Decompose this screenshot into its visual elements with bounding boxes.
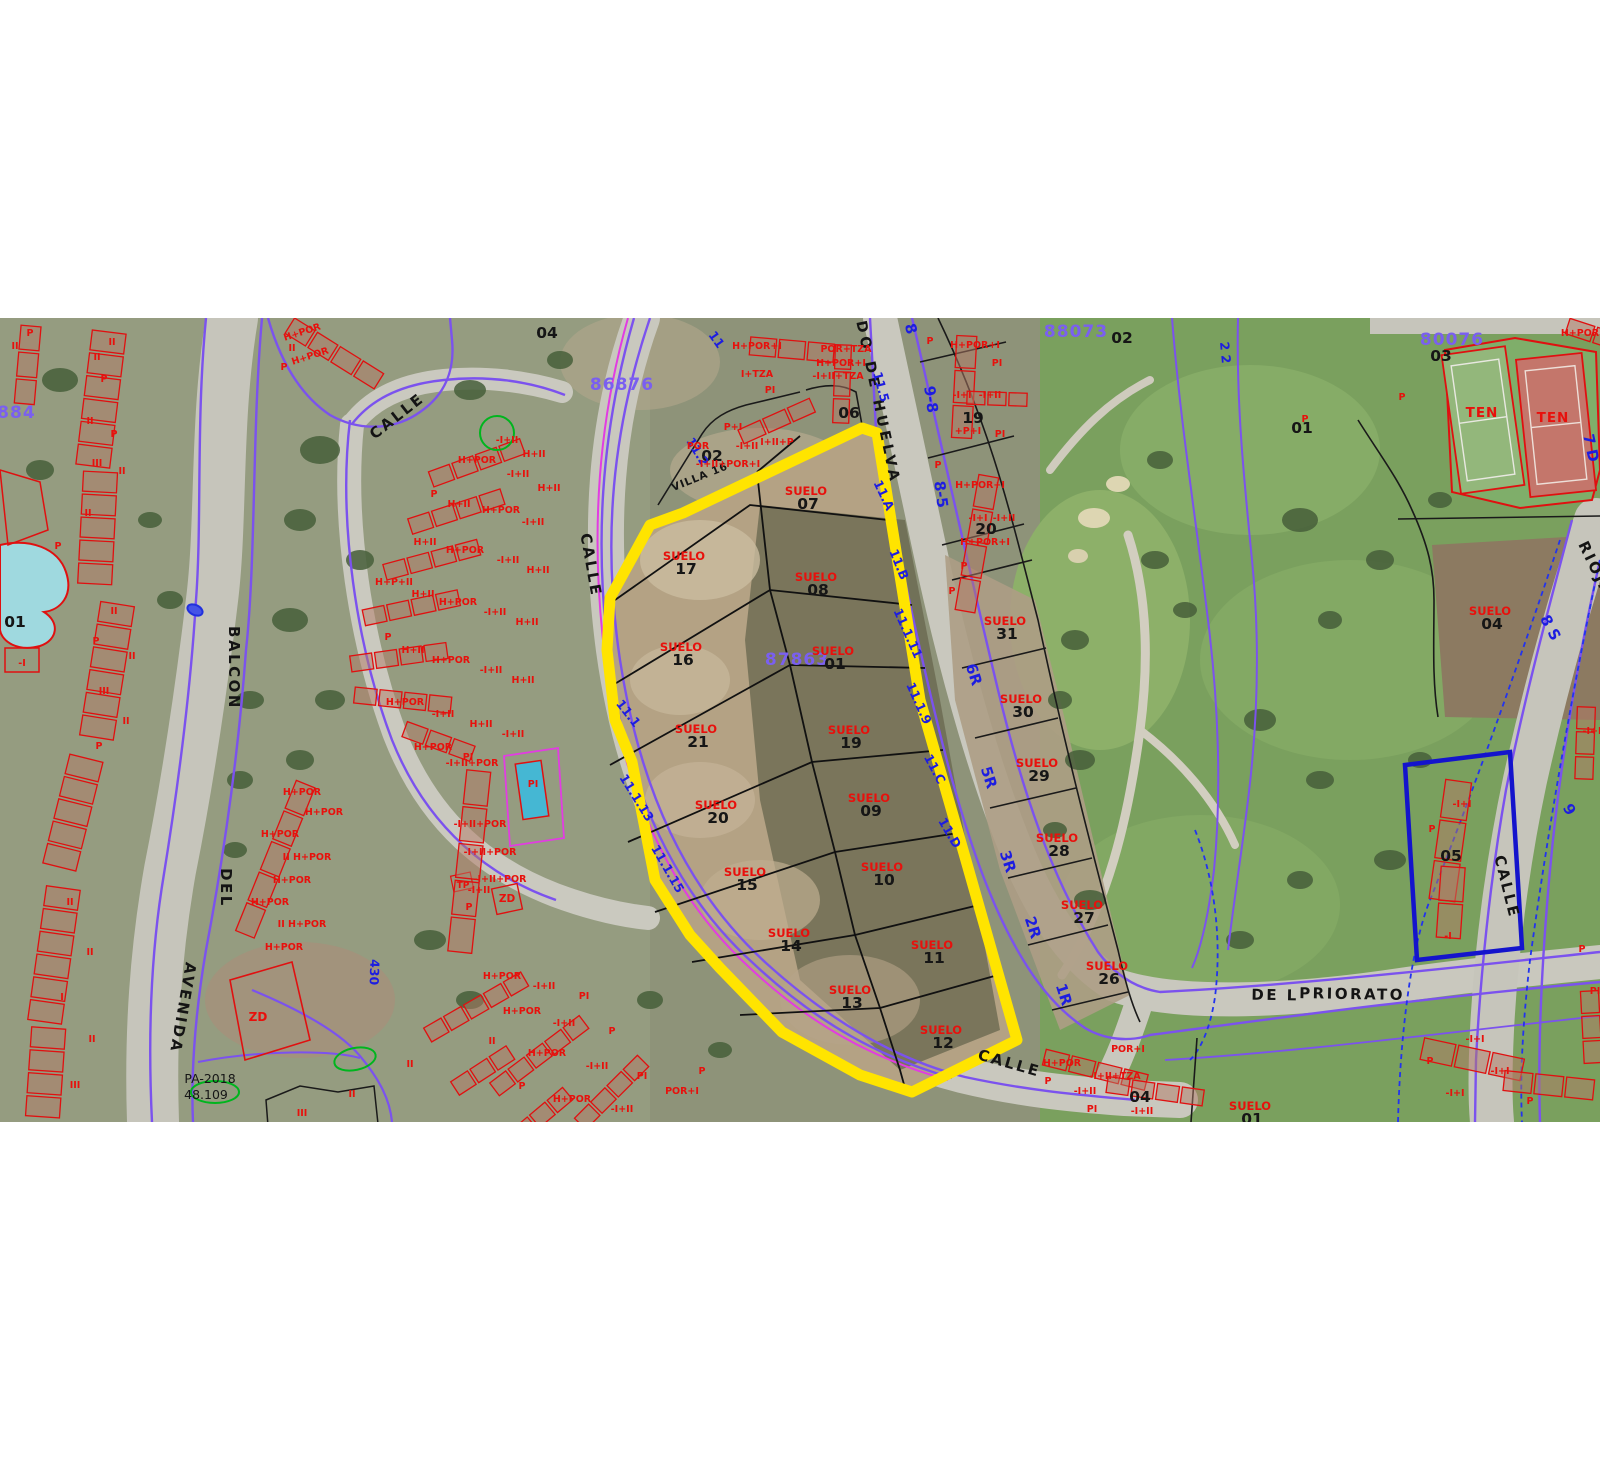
- building-label: PI: [1087, 1104, 1098, 1115]
- building-label: H+POR+I: [955, 480, 1005, 491]
- plot-number: 11: [923, 949, 945, 967]
- building-label: -I+II+TZA: [812, 371, 864, 382]
- building-label: PI: [637, 1071, 648, 1082]
- building-label: III: [70, 1080, 81, 1091]
- plot-number: 19: [840, 734, 862, 752]
- building-label: PI: [765, 385, 776, 396]
- building-label: P: [949, 586, 956, 597]
- building-label: II: [122, 716, 129, 727]
- plot-number: 15: [736, 876, 758, 894]
- building-label: P: [699, 1066, 706, 1077]
- plot-number: 05: [1440, 847, 1462, 865]
- plot-number: 08: [807, 581, 829, 599]
- building-label: II: [406, 1059, 413, 1070]
- building-outline: [354, 687, 378, 705]
- cadastral-map-page: CALLEBALCONDELAVENIDACALLEADO DE HUELVAC…: [0, 0, 1600, 1467]
- plot-number: 13: [841, 994, 863, 1012]
- building-label: P: [385, 632, 392, 643]
- building-label: -I+II+POR+I: [696, 459, 760, 470]
- building-outline: [1534, 1074, 1564, 1097]
- building-label: -I+II: [586, 1061, 609, 1072]
- building-outline: [350, 653, 374, 672]
- building-label: -I+II: [480, 665, 503, 676]
- building-outline: [1180, 1087, 1204, 1106]
- building-label: -I+II: [993, 513, 1016, 524]
- building-label: H+POR: [305, 807, 344, 818]
- plot-number: PA-2018: [184, 1071, 235, 1086]
- building-label: H+II: [516, 617, 539, 628]
- building-outline: [1439, 866, 1465, 902]
- building-label: III: [99, 686, 110, 697]
- building-label: H+POR+I: [732, 341, 782, 352]
- building-label: H+P+II: [375, 577, 413, 588]
- building-label: H+POR: [458, 455, 497, 466]
- building-label: H+POR: [1561, 328, 1600, 339]
- building-label: P: [1399, 392, 1406, 403]
- building-outline: [30, 1027, 65, 1049]
- building-label: +P+I: [955, 426, 981, 437]
- building-label: II: [66, 897, 73, 908]
- building-label: ZD: [249, 1010, 268, 1024]
- building-label: P: [101, 374, 108, 385]
- building-label: II: [108, 337, 115, 348]
- building-outline: [34, 954, 70, 979]
- building-label: H+POR: [273, 875, 312, 886]
- building-label: H+POR+I: [816, 358, 866, 369]
- street-name: BALCON: [225, 626, 243, 710]
- building-label: I: [60, 992, 64, 1003]
- building-label: POR+TZA: [820, 344, 872, 355]
- building-label: II: [488, 1036, 495, 1047]
- plot-number: 17: [675, 560, 697, 578]
- building-label: P: [466, 902, 473, 913]
- building-label: PI: [992, 358, 1003, 369]
- building-label: -I+I: [1491, 1066, 1510, 1077]
- plot-number: 28: [1048, 842, 1070, 860]
- building-label: -I+II: [502, 729, 525, 740]
- building-label: H+POR: [251, 897, 290, 908]
- building-label: H+II: [538, 483, 561, 494]
- building-outline: [448, 917, 475, 953]
- plot-number: 19: [962, 409, 984, 427]
- plot-number: 30: [1012, 703, 1034, 721]
- building-outline: [79, 421, 115, 445]
- plot-number: 26: [1098, 970, 1120, 988]
- map-canvas[interactable]: CALLEBALCONDELAVENIDACALLEADO DE HUELVAC…: [0, 318, 1600, 1122]
- plot-number: 01: [824, 655, 846, 673]
- building-label: P: [96, 741, 103, 752]
- plot-number: 04: [1129, 1088, 1151, 1106]
- street-name: PRIORATO: [1299, 984, 1405, 1004]
- building-label: H+POR: [414, 742, 453, 753]
- building-label: H+POR: [265, 942, 304, 953]
- building-label: -I+II: [611, 1104, 634, 1115]
- building-label: -I+II+POR: [474, 874, 528, 885]
- building-outline: [463, 770, 490, 806]
- building-label: ZD: [499, 893, 516, 905]
- building-outline: [1582, 1016, 1600, 1039]
- building-label: P: [1527, 1096, 1534, 1107]
- building-label: II: [288, 343, 295, 354]
- building-outline: [37, 931, 73, 956]
- building-label: P: [55, 541, 62, 552]
- building-label: P: [961, 561, 968, 572]
- building-outline: [1009, 393, 1027, 407]
- building-label: P: [1427, 1056, 1434, 1067]
- building-label: -I+II+POR: [446, 758, 500, 769]
- parcel-id: 88073: [1044, 322, 1108, 342]
- building-label: -I+II: [496, 435, 519, 446]
- parcel-id: 86876: [590, 375, 654, 395]
- building-label: -I+II: [736, 441, 759, 452]
- plot-number: 20: [707, 809, 729, 827]
- building-label: PI: [528, 779, 539, 790]
- building-label: P: [281, 362, 288, 373]
- tennis-court-label: TEN: [1466, 405, 1499, 421]
- building-outline: [1156, 1084, 1180, 1103]
- plot-number: 09: [860, 802, 882, 820]
- building-label: H+POR+I: [960, 537, 1010, 548]
- building-label: H+POR: [553, 1094, 592, 1105]
- building-label: II: [86, 416, 93, 427]
- plot-number: 29: [1028, 767, 1050, 785]
- building-label: -I+II: [484, 607, 507, 618]
- building-outline: [27, 1073, 62, 1095]
- building-outline: [1583, 1040, 1600, 1063]
- building-label: P: [1302, 414, 1309, 425]
- road-measure: 2 2: [1217, 341, 1234, 364]
- building-outline: [374, 650, 398, 669]
- plot-number: 12: [932, 1034, 954, 1052]
- plot-number: 14: [780, 937, 802, 955]
- building-label: II: [93, 352, 100, 363]
- building-label: -I+II: [468, 885, 491, 896]
- building-label: -I+I: [1446, 1088, 1465, 1099]
- plot-number: 16: [672, 651, 694, 669]
- plot-number: 10: [873, 871, 895, 889]
- building-label: II H+POR: [283, 852, 332, 863]
- building-label: P: [1579, 944, 1586, 955]
- tennis-court-label: TEN: [1537, 410, 1570, 426]
- building-outline: [1575, 757, 1594, 780]
- building-label: H+POR: [261, 829, 300, 840]
- building-label: H+II: [527, 565, 550, 576]
- building-label: -I+II: [553, 1018, 576, 1029]
- road-code: 9-8: [920, 385, 942, 414]
- building-label: -I+II: [432, 709, 455, 720]
- plot-number: 07: [797, 495, 819, 513]
- building-label: II: [86, 947, 93, 958]
- plot-number: 04: [1481, 615, 1503, 633]
- building-label: H+II: [402, 645, 425, 656]
- building-label: -I+I: [1466, 1034, 1485, 1045]
- building-outline: [44, 886, 80, 911]
- building-label: H+POR: [386, 697, 425, 708]
- building-outline: [79, 540, 114, 562]
- building-label: -I: [1444, 931, 1451, 942]
- plot-number: 02: [1111, 329, 1133, 347]
- building-label: H+POR: [482, 505, 521, 516]
- parcel-id: 8884: [0, 403, 36, 423]
- building-label: II: [110, 606, 117, 617]
- plot-number: 27: [1073, 909, 1095, 927]
- building-outline: [1565, 1077, 1595, 1100]
- plot-number: 48.109: [184, 1087, 228, 1102]
- building-outline: [778, 339, 805, 359]
- building-label: H+II: [414, 537, 437, 548]
- building-label: H+II: [512, 675, 535, 686]
- building-outline: [80, 517, 115, 539]
- building-label: II: [11, 341, 18, 352]
- building-label: P: [935, 460, 942, 471]
- building-label: H+POR+I: [950, 340, 1000, 351]
- plot-number: 01: [4, 613, 26, 631]
- building-outline: [28, 1000, 64, 1025]
- plot-number: 21: [687, 733, 709, 751]
- building-label: -I+II: [522, 517, 545, 528]
- plot-number: 31: [996, 625, 1018, 643]
- building-label: P: [431, 489, 438, 500]
- building-label: P: [93, 636, 100, 647]
- building-label: H+POR: [283, 787, 322, 798]
- building-label: -I+II: [1131, 1106, 1154, 1117]
- building-label: -I+II: [533, 981, 556, 992]
- building-label: II: [84, 508, 91, 519]
- building-label: -I+II+TZA: [1089, 1071, 1141, 1082]
- building-label: H+POR: [528, 1048, 567, 1059]
- building-label: H+POR: [432, 655, 471, 666]
- building-label: -I+II+POR: [454, 819, 508, 830]
- building-outline: [26, 1096, 61, 1118]
- building-label: H+POR: [483, 971, 522, 982]
- building-label: -I+I: [969, 513, 988, 524]
- plot-number: 06: [838, 404, 860, 422]
- building-label: II: [118, 466, 125, 477]
- building-label: H+II: [412, 589, 435, 600]
- building-label: P: [927, 336, 934, 347]
- building-outline: [78, 563, 113, 585]
- building-label: -I: [18, 658, 25, 669]
- building-label: POR+I: [665, 1086, 699, 1097]
- building-label: -I+II: [1074, 1086, 1097, 1097]
- building-label: H+II: [470, 719, 493, 730]
- building-label: P: [609, 1026, 616, 1037]
- plot-number: 01: [1241, 1110, 1263, 1122]
- building-label: -I+I: [1583, 726, 1600, 737]
- building-label: -I+I: [953, 390, 972, 401]
- building-label: III: [297, 1108, 308, 1119]
- building-label: TP: [457, 881, 470, 891]
- street-name: DE L: [1251, 986, 1299, 1005]
- building-outline: [29, 1050, 64, 1072]
- building-outline: [41, 909, 77, 934]
- building-label: -I+II: [497, 555, 520, 566]
- building-label: P: [27, 328, 34, 339]
- building-label: P+I: [724, 422, 742, 433]
- building-label: POR+I: [1111, 1044, 1145, 1055]
- building-label: PI: [995, 429, 1006, 440]
- building-label: -I+II+POR: [464, 847, 518, 858]
- road-measure: 430: [367, 959, 383, 986]
- building-label: P: [519, 1081, 526, 1092]
- building-label: H+II: [448, 499, 471, 510]
- building-label: PI: [579, 991, 590, 1002]
- building-label: POR: [687, 441, 710, 452]
- plot-number: 04: [536, 324, 558, 342]
- street-name: DEL: [217, 868, 235, 908]
- building-label: III: [92, 458, 103, 469]
- building-label: II: [128, 651, 135, 662]
- building-outline: [82, 471, 117, 493]
- building-outline: [14, 379, 36, 405]
- building-label: P: [1429, 824, 1436, 835]
- building-label: H+POR: [1043, 1058, 1082, 1069]
- building-label: H+II: [523, 449, 546, 460]
- building-label: H+POR: [446, 545, 485, 556]
- building-label: P: [111, 429, 118, 440]
- building-label: I+II+P: [760, 437, 794, 448]
- building-label: -I+II: [507, 469, 530, 480]
- building-label: P: [1045, 1076, 1052, 1087]
- building-outline: [17, 352, 39, 378]
- building-label: I+TZA: [741, 369, 774, 380]
- road-code: 8-5: [930, 480, 952, 509]
- building-label: H+POR: [503, 1006, 542, 1017]
- building-label: -I+I: [1453, 799, 1472, 810]
- building-label: II H+POR: [278, 919, 327, 930]
- building-label: -I+II: [979, 390, 1002, 401]
- building-label: II: [88, 1034, 95, 1045]
- building-label: H+POR: [439, 597, 478, 608]
- building-label: PI: [1590, 986, 1600, 997]
- building-label: II: [348, 1089, 355, 1100]
- plot-number: 03: [1430, 347, 1452, 365]
